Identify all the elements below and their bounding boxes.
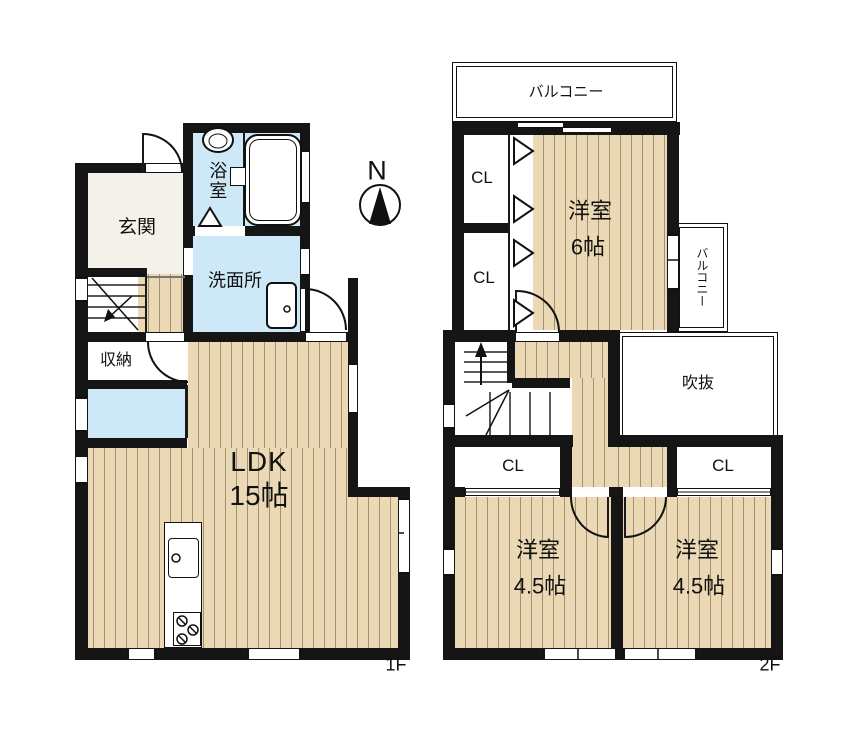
washing-machine-pan bbox=[266, 282, 297, 329]
wall bbox=[667, 122, 679, 332]
bathtub-inner-line bbox=[249, 139, 297, 221]
window bbox=[772, 548, 782, 576]
side-door-leaf bbox=[300, 288, 306, 332]
compass-needle bbox=[369, 187, 391, 224]
window bbox=[668, 234, 678, 290]
window bbox=[399, 498, 409, 574]
wall bbox=[183, 226, 195, 236]
window bbox=[543, 649, 617, 659]
kitchen-stove bbox=[173, 612, 201, 646]
room45-left-doorway bbox=[572, 487, 609, 497]
ldk-floor-lower bbox=[83, 497, 408, 653]
window bbox=[623, 649, 697, 659]
closet-sliding-door bbox=[677, 488, 771, 496]
wall bbox=[560, 437, 572, 497]
wall bbox=[667, 443, 677, 497]
room45-left-door-leaf bbox=[607, 497, 609, 538]
closet-sw-label: CL bbox=[502, 456, 524, 476]
wall bbox=[183, 123, 310, 133]
closet-front-line bbox=[508, 133, 510, 330]
wall bbox=[183, 332, 305, 342]
wall bbox=[75, 332, 147, 342]
bathroom-label: 浴室 bbox=[207, 161, 228, 201]
room6-door bbox=[515, 332, 560, 342]
balcony-side-label: バルコニー bbox=[694, 247, 708, 307]
room45-left-name-label: 洋室 bbox=[516, 537, 560, 562]
bath-counter bbox=[230, 167, 246, 186]
closet-nw-lower-label: CL bbox=[473, 268, 495, 288]
toilet-side-wall bbox=[185, 385, 188, 438]
wall bbox=[443, 487, 465, 497]
wall bbox=[608, 330, 620, 447]
wall bbox=[75, 438, 187, 448]
window bbox=[247, 649, 301, 659]
entrance-label: 玄関 bbox=[118, 217, 156, 239]
window bbox=[517, 122, 564, 128]
entry-door-leaf bbox=[142, 133, 144, 172]
wall bbox=[443, 435, 573, 447]
window bbox=[562, 127, 612, 133]
stair-direction-line bbox=[92, 278, 138, 330]
room6-door-leaf bbox=[515, 290, 517, 332]
closet-se-label: CL bbox=[712, 456, 734, 476]
wall bbox=[507, 332, 515, 383]
ldk-size-label: 15帖 bbox=[229, 480, 288, 512]
room45-left-size-label: 4.5帖 bbox=[514, 573, 567, 598]
room6-floor bbox=[533, 135, 667, 330]
wall bbox=[75, 648, 410, 660]
wall bbox=[611, 487, 623, 660]
hall2f-floor-c bbox=[608, 447, 667, 490]
balcony-top-label: バルコニー bbox=[529, 83, 604, 100]
window bbox=[76, 455, 87, 484]
hall2f-floor-b bbox=[572, 378, 608, 490]
window bbox=[76, 277, 87, 302]
wall bbox=[245, 226, 310, 236]
window bbox=[444, 548, 454, 576]
floorplan-canvas: N 玄関 浴室 洗面所 収納 LDK 15帖 1F バルコニー CL CL 洋室… bbox=[0, 0, 858, 731]
room45-right-name-label: 洋室 bbox=[675, 537, 719, 562]
stair-up-arrow bbox=[475, 342, 487, 357]
toilet-floor bbox=[88, 388, 187, 440]
room45-right-door-leaf bbox=[624, 497, 626, 538]
wall bbox=[75, 163, 145, 173]
compass-circle bbox=[360, 185, 400, 225]
storage-door bbox=[145, 332, 185, 342]
wall bbox=[608, 435, 783, 447]
side-door bbox=[305, 332, 347, 342]
kitchen-sink bbox=[168, 538, 199, 578]
window bbox=[301, 247, 309, 276]
void-label: 吹抜 bbox=[682, 375, 714, 393]
closet-sliding-door bbox=[465, 488, 560, 496]
window bbox=[349, 363, 357, 414]
room6-size-label: 6帖 bbox=[571, 234, 605, 259]
room45-right-doorway bbox=[623, 487, 667, 497]
opening bbox=[184, 248, 193, 275]
window bbox=[127, 649, 156, 659]
ldk-name-label: LDK bbox=[230, 446, 287, 478]
entrance-step-line bbox=[147, 276, 185, 278]
room6-name-label: 洋室 bbox=[568, 198, 612, 223]
wall bbox=[609, 487, 623, 497]
compass-north-label: N bbox=[367, 155, 387, 186]
wall bbox=[75, 268, 145, 277]
storage-label: 収納 bbox=[100, 352, 132, 370]
window bbox=[76, 397, 87, 432]
hall2f-floor-a bbox=[515, 342, 608, 378]
wall bbox=[443, 330, 515, 342]
entry-door-arc bbox=[143, 133, 183, 172]
ldk-floor-upper bbox=[188, 337, 353, 453]
ldk-floor-mid bbox=[83, 448, 353, 497]
wall bbox=[452, 223, 510, 233]
window bbox=[444, 403, 454, 429]
room45-right-size-label: 4.5帖 bbox=[673, 573, 726, 598]
stair-down-arrow bbox=[104, 309, 115, 322]
washroom-label: 洗面所 bbox=[208, 271, 262, 292]
floor1-label: 1F bbox=[385, 655, 406, 676]
window bbox=[301, 150, 309, 204]
bathtub bbox=[244, 134, 302, 226]
closet-nw-upper-label: CL bbox=[471, 168, 493, 188]
storage-door-arc bbox=[147, 342, 188, 383]
wall bbox=[512, 378, 570, 388]
wall bbox=[75, 380, 187, 389]
floor2-label: 2F bbox=[759, 655, 780, 676]
opening bbox=[195, 226, 245, 236]
side-door-arc bbox=[305, 288, 347, 330]
